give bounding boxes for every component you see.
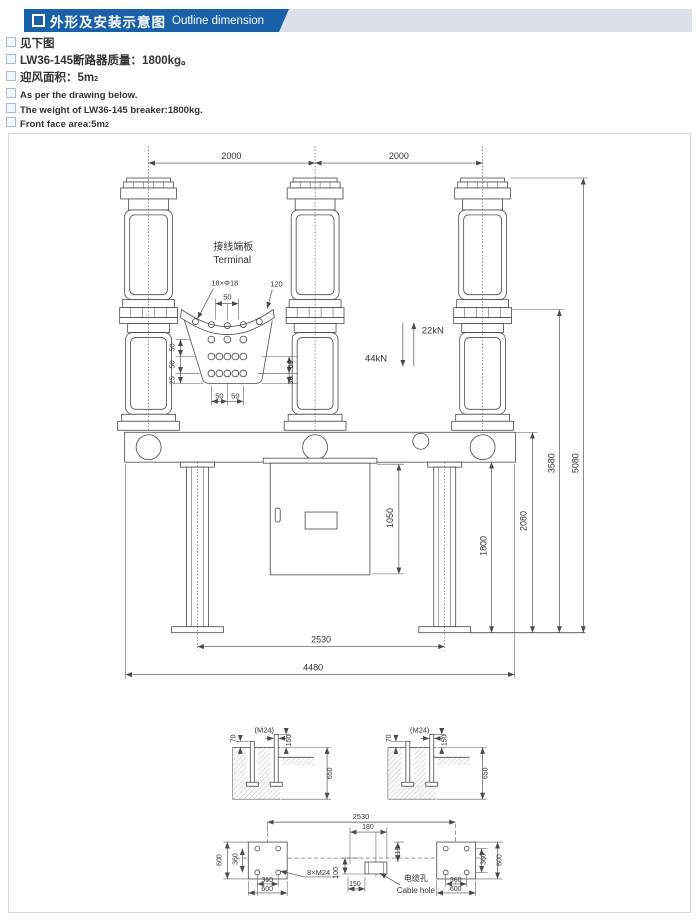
bullet-square-icon: [6, 117, 16, 127]
control-cabinet: [263, 458, 377, 575]
dim-foundation-left-70: 70: [230, 734, 237, 742]
dim-4480: 4480: [303, 663, 323, 673]
support-leg-right: [419, 462, 471, 650]
dim-plate-right-600v: 600: [497, 854, 504, 866]
dim-term-top-50: 50: [223, 293, 231, 302]
dim-plate-left-600h: 600: [261, 886, 273, 893]
leader-cable-hole: [380, 873, 400, 885]
dim-plate-left-600v: 600: [216, 854, 223, 866]
terminal-label-en: Terminal: [213, 255, 251, 266]
pole-column-right: [452, 146, 514, 455]
dim-plate-right-600h: 600: [450, 886, 462, 893]
force-arrows: [403, 323, 414, 367]
bullet-item: 迎风面积：5m2: [6, 70, 656, 88]
dim-term-left-50b: 50: [168, 360, 177, 368]
bullet-square-icon: [6, 88, 16, 98]
force-44kn: 44kN: [365, 353, 387, 364]
pole-column-left: [118, 146, 180, 455]
dim-2530-plan: 2530: [353, 812, 370, 821]
note-foundation-right-m24: (M24): [410, 725, 430, 734]
dim-cable-115: 115: [395, 846, 402, 857]
terminal-detail: [176, 289, 299, 406]
bullet-item: 见下图: [6, 36, 656, 53]
outline-dimension-drawing: 2000200022kN44kN接线端板Terminal18×Φ18120505…: [9, 134, 690, 912]
support-leg-left: [172, 462, 224, 650]
dim-1800: 1800: [479, 536, 489, 556]
foundation-section-right: [388, 728, 487, 799]
banner-band: [279, 9, 692, 32]
bullet-item: The weight of LW36-145 breaker:1800kg.: [6, 103, 656, 118]
bullet-item: LW36-145断路器质量：1800kg。: [6, 53, 656, 70]
bullet-list: 见下图LW36-145断路器质量：1800kg。迎风面积：5m2As per t…: [6, 36, 656, 133]
banner-square-icon: [32, 14, 45, 27]
dim-term-left-25: 25: [168, 376, 177, 384]
bullet-square-icon: [6, 103, 16, 113]
dim-foundation-left-650: 650: [327, 767, 334, 779]
base-plate-plan-left: [248, 842, 287, 879]
dim-foundation-left-150: 150: [286, 734, 293, 746]
force-22kn: 22kN: [422, 326, 444, 337]
bullet-text: 见下图: [20, 36, 55, 53]
dim-plate-right-360h: 360: [450, 877, 462, 884]
pole-column-center: [284, 146, 346, 455]
dim-2000-left: 2000: [221, 151, 241, 161]
dim-cable-180: 180: [362, 824, 374, 831]
terminal-label-zh: 接线端板: [213, 240, 253, 253]
leader-120: [267, 290, 272, 309]
bullet-text: The weight of LW36-145 breaker:1800kg.: [20, 104, 203, 118]
dim-term-bottom-50b: 50: [231, 391, 239, 400]
dim-plate-right-360v: 360: [481, 853, 488, 865]
catalog-page: 外形及安装示意图 Outline dimension 见下图LW36-145断路…: [0, 0, 700, 924]
dim-2000-right: 2000: [389, 151, 409, 161]
foundation-section-left: [232, 728, 331, 799]
bullet-text: Front face area:5m: [20, 118, 105, 132]
base-beam: [125, 432, 516, 462]
base-plate-plan-right: [437, 842, 476, 879]
dim-foundation-right-650: 650: [483, 767, 490, 779]
dim-term-right-30: 30: [286, 376, 295, 384]
section-title-zh: 外形及安装示意图: [50, 11, 166, 31]
cable-hole-label-en: Cable hole: [397, 886, 436, 895]
leader-terminal-holes: [197, 289, 213, 319]
dim-term-bottom-50a: 50: [215, 391, 223, 400]
cable-hole-label-zh: 电缆孔: [404, 873, 428, 883]
plan-details: [223, 822, 502, 896]
bullet-text: LW36-145断路器质量：1800kg。: [20, 53, 193, 70]
bullet-item: Front face area:5m2: [6, 117, 656, 133]
dim-2080: 2080: [518, 511, 528, 531]
bullet-square-icon: [6, 54, 16, 64]
note-foundation-left-m24: (M24): [254, 725, 274, 734]
bullet-item: As per the drawing below.: [6, 88, 656, 103]
dim-120: 120: [270, 280, 282, 289]
cabinet-handle: [275, 508, 280, 522]
dim-5080: 5080: [570, 453, 580, 473]
bullet-text: 迎风面积：5m: [20, 70, 94, 87]
dim-plate-left-360v: 360: [232, 853, 239, 865]
dim-1050: 1050: [385, 508, 395, 528]
note-anchor-bolts: 8×M24: [307, 868, 330, 877]
dim-2530-elev: 2530: [311, 635, 331, 645]
dim-3580: 3580: [546, 453, 556, 473]
dim-plate-left-360h: 360: [261, 877, 273, 884]
dim-foundation-right-150: 150: [442, 734, 449, 746]
terminal-holes-note: 18×Φ18: [211, 279, 238, 288]
dim-term-right-50: 50: [286, 360, 295, 368]
section-banner: 外形及安装示意图 Outline dimension: [24, 9, 292, 32]
bullet-text: As per the drawing below.: [20, 89, 137, 103]
dim-foundation-right-70: 70: [386, 734, 393, 742]
dim-cable-150: 150: [349, 881, 361, 888]
dim-term-left-50a: 50: [168, 343, 177, 351]
drawing-frame: 2000200022kN44kN接线端板Terminal18×Φ18120505…: [8, 133, 691, 913]
dim-cable-100: 100: [333, 867, 340, 879]
cabinet-nameplate: [305, 512, 337, 529]
section-title-en: Outline dimension: [172, 15, 264, 27]
dimension-labels: 2000200022kN44kN接线端板Terminal18×Φ18120505…: [168, 151, 581, 895]
bullet-square-icon: [6, 37, 16, 47]
bullet-square-icon: [6, 71, 16, 81]
